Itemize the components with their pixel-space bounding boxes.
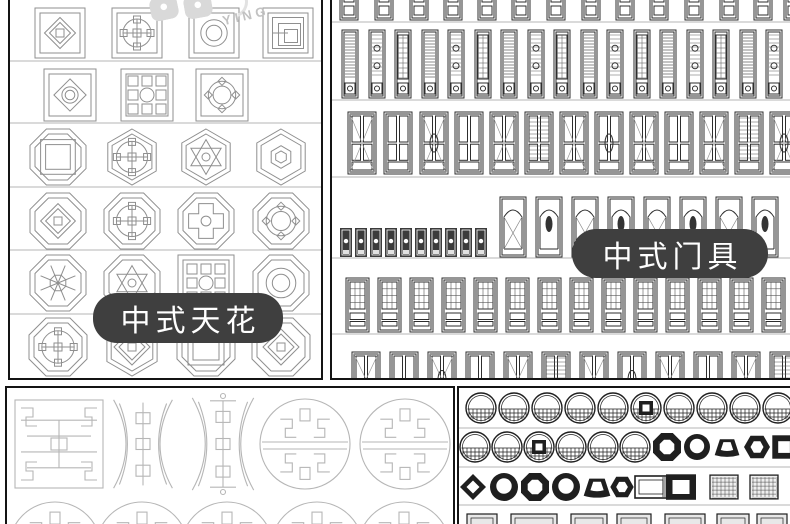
door-designs-panel	[330, 0, 790, 380]
cad-collection-screenshot: 中式天花 中式门具 YING	[0, 0, 790, 524]
panel-doors-drawing	[332, 0, 790, 378]
ceiling-category-badge: 中式天花	[93, 293, 283, 343]
shou-motifs-panel	[5, 386, 455, 524]
panel-motifs-drawing	[7, 388, 453, 524]
ceiling-category-label: 中式天花	[116, 296, 261, 340]
round-windows-panel	[457, 386, 790, 524]
doors-category-label: 中式门具	[598, 232, 743, 276]
panel-windows-drawing	[459, 388, 790, 524]
doors-category-badge: 中式门具	[572, 229, 768, 278]
